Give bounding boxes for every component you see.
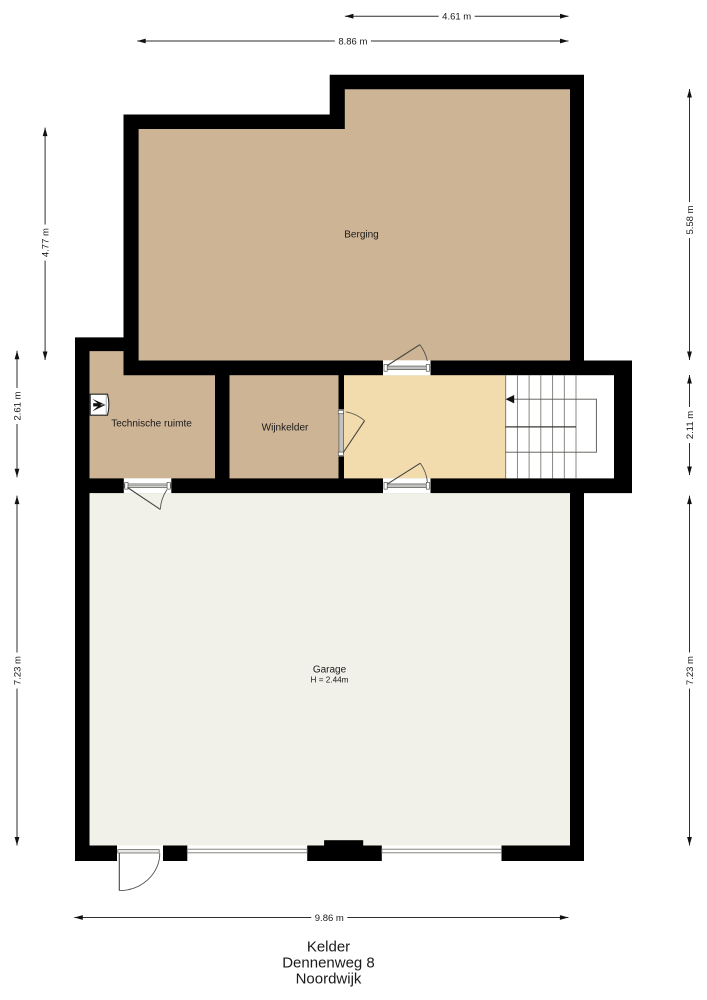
svg-text:Garage: Garage xyxy=(313,665,347,676)
svg-text:Technische ruimte: Technische ruimte xyxy=(111,419,192,430)
svg-text:2.61 m: 2.61 m xyxy=(12,391,23,420)
svg-text:5.58 m: 5.58 m xyxy=(685,205,696,234)
svg-text:Wijnkelder: Wijnkelder xyxy=(262,422,309,433)
svg-text:4.77 m: 4.77 m xyxy=(40,228,51,257)
svg-text:9.86 m: 9.86 m xyxy=(315,913,344,924)
svg-text:8.86 m: 8.86 m xyxy=(338,36,367,47)
svg-text:4.61 m: 4.61 m xyxy=(442,12,471,23)
svg-text:7.23 m: 7.23 m xyxy=(685,656,696,685)
svg-text:Noordwijk: Noordwijk xyxy=(296,971,362,988)
svg-text:H = 2.44m: H = 2.44m xyxy=(311,676,349,685)
svg-text:Kelder: Kelder xyxy=(307,939,350,956)
svg-text:Berging: Berging xyxy=(344,229,378,240)
svg-text:2.11 m: 2.11 m xyxy=(685,411,696,439)
svg-text:Dennenweg 8: Dennenweg 8 xyxy=(282,955,375,972)
svg-text:7.23 m: 7.23 m xyxy=(12,656,23,685)
